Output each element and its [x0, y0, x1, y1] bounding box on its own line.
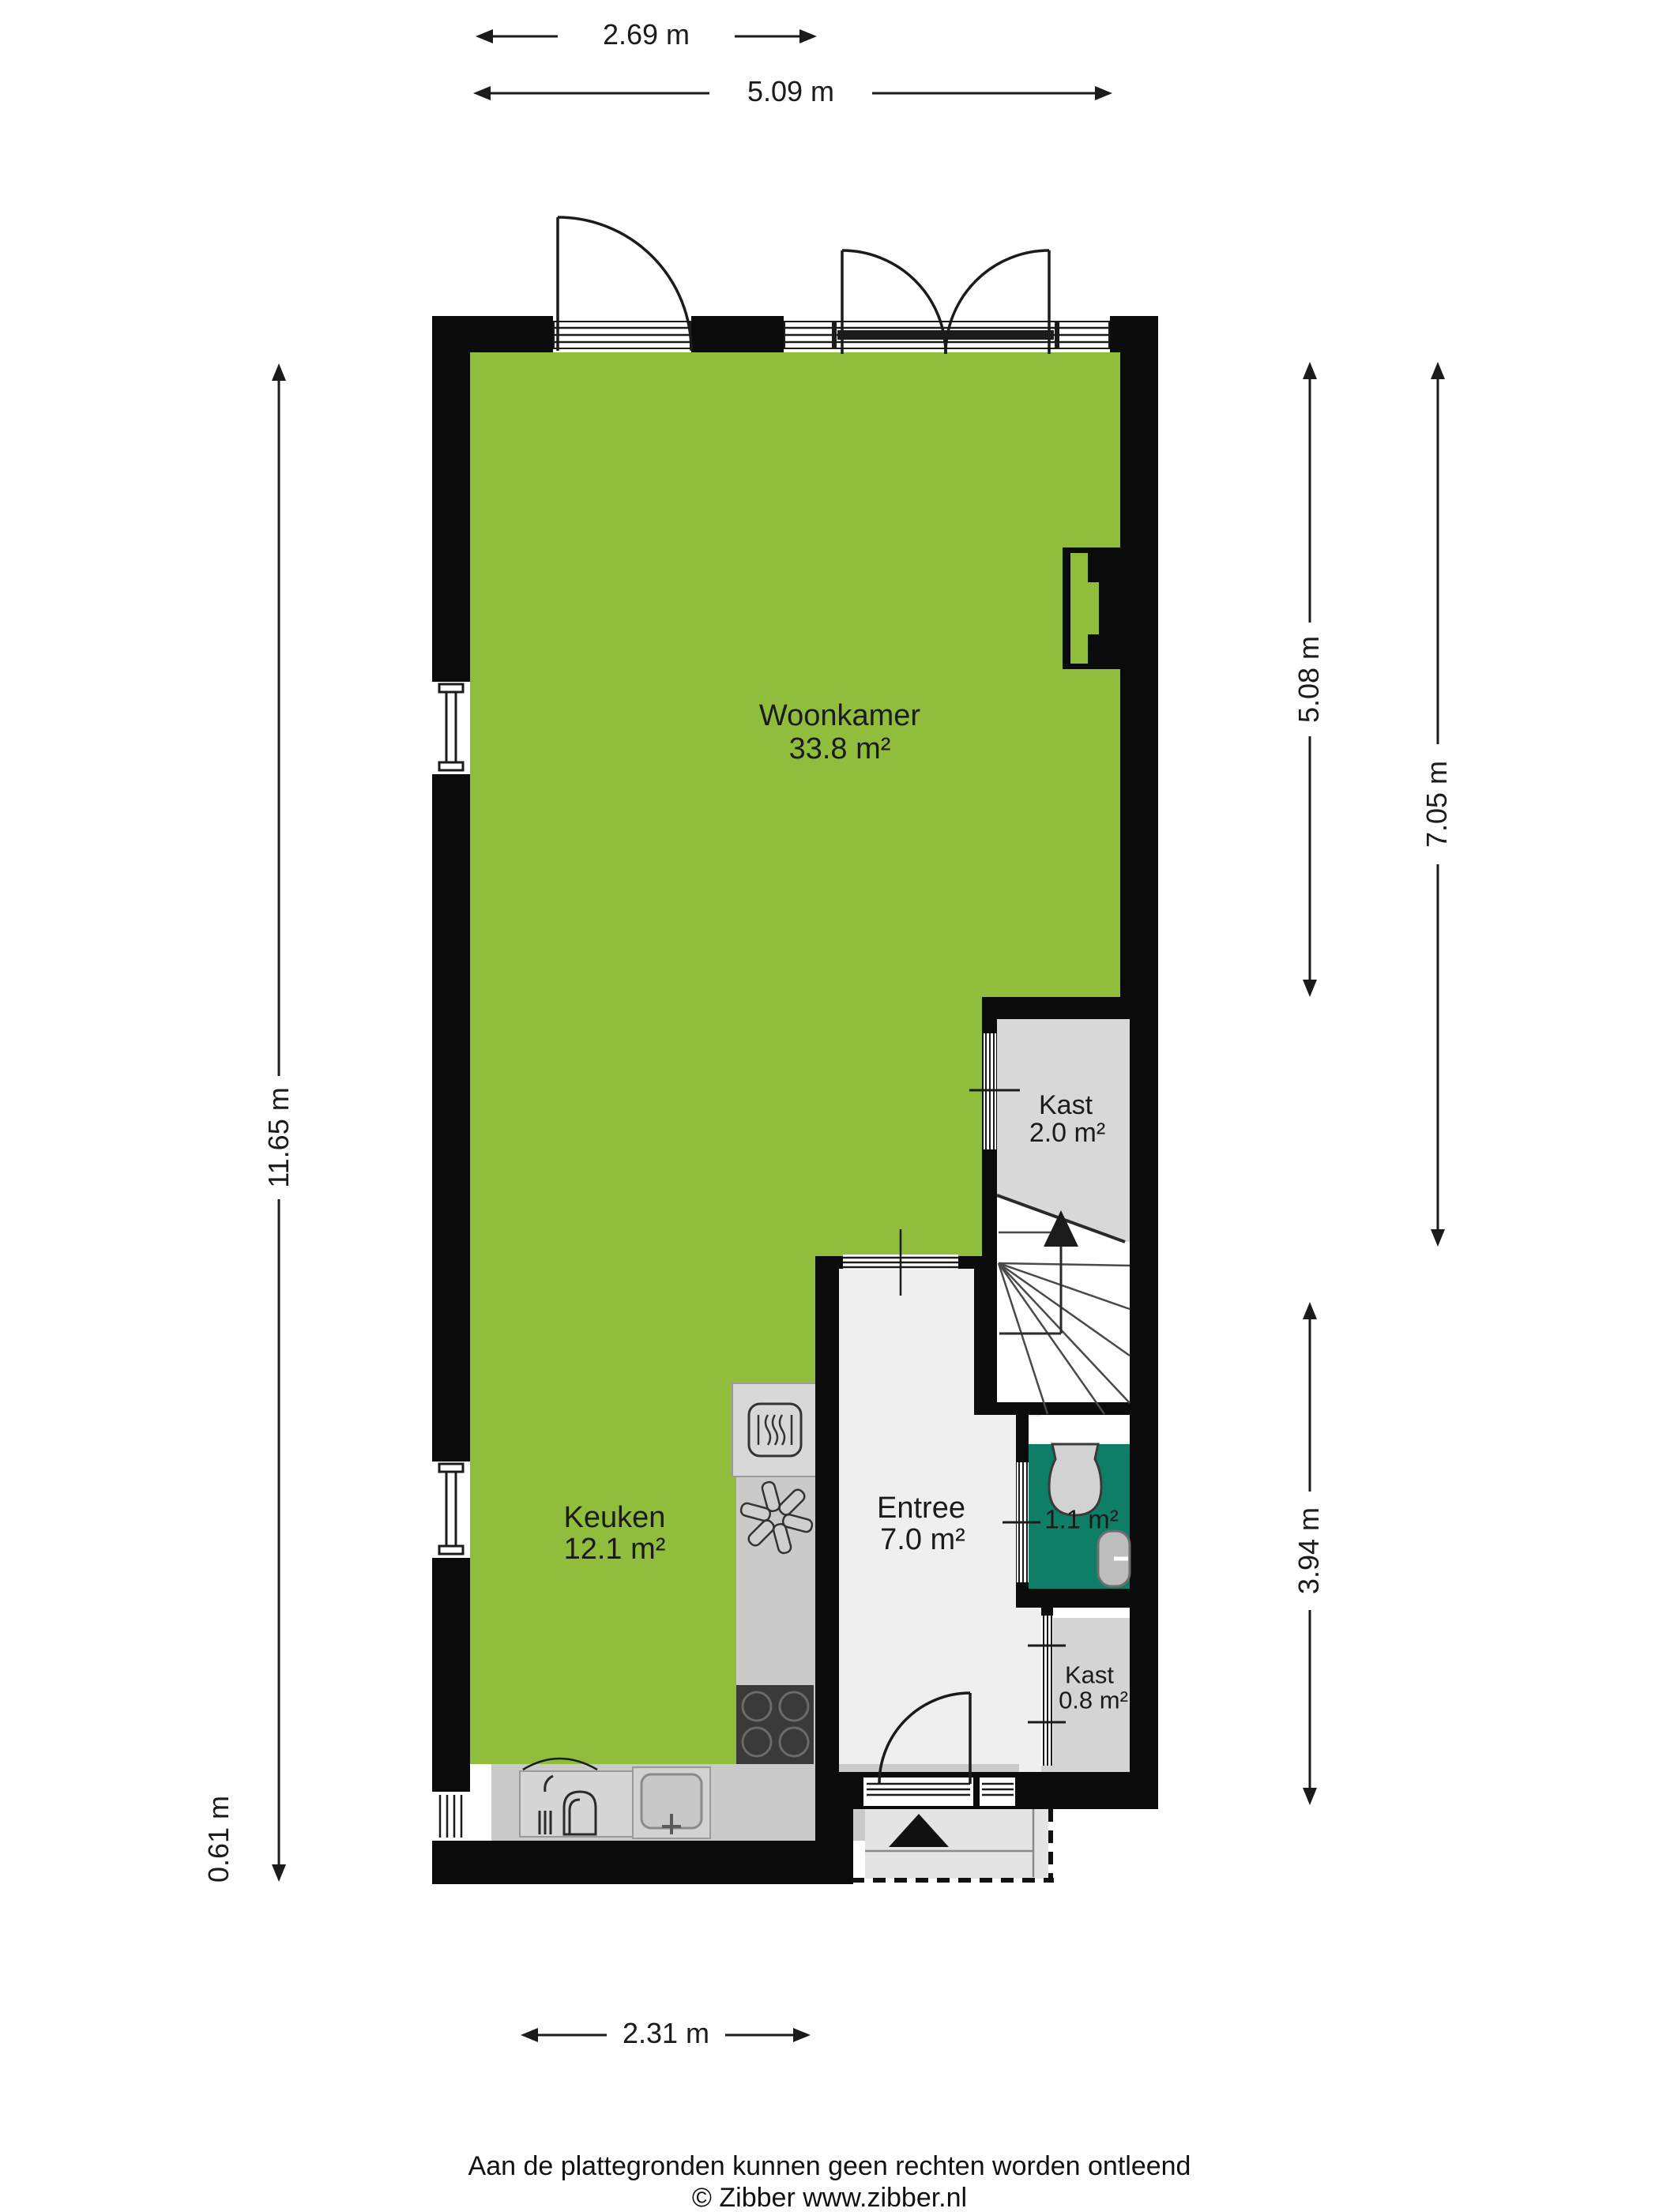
kast-boven-louvre-lines — [969, 1033, 1020, 1149]
kast-boven-label: Kast — [1039, 1092, 1093, 1119]
front-door-lines — [867, 1784, 1014, 1795]
dim-right-upper-label: 5.08 m — [1295, 636, 1323, 723]
woonkamer-area: 33.8 m² — [789, 734, 891, 764]
dim-right-lower-label: 3.94 m — [1295, 1507, 1323, 1594]
floorplan-canvas: Woonkamer 33.8 m² Keuken 12.1 m² Entree … — [0, 0, 1659, 2212]
kast-boven-area: 2.0 m² — [1029, 1119, 1105, 1146]
dim-left-small-label: 0.61 m — [205, 1796, 233, 1883]
woonkamer-label: Woonkamer — [759, 701, 920, 731]
sink-icon — [641, 1774, 702, 1834]
kast-onder-area: 0.8 m² — [1059, 1688, 1128, 1713]
keuken-area: 12.1 m² — [564, 1534, 666, 1564]
entree-label: Entree — [877, 1493, 965, 1523]
plan-linework — [0, 0, 1659, 2212]
opening-lines — [843, 1229, 958, 1296]
extractor-fan-icon — [739, 1480, 813, 1554]
oven-icon — [749, 1404, 801, 1456]
entrance-arrow — [889, 1814, 949, 1847]
dim-top-small-label: 2.69 m — [603, 21, 690, 49]
boiler-icon — [540, 1776, 596, 1834]
door-top-single — [558, 217, 691, 351]
window-glazing-1 — [439, 684, 463, 770]
keuken-label: Keuken — [564, 1503, 666, 1533]
counter-edge-arc — [523, 1759, 597, 1770]
cooktop-burners — [743, 1692, 808, 1756]
front-door-swing — [879, 1693, 970, 1784]
washbasin-icon — [1098, 1531, 1130, 1586]
window-glazing-2 — [439, 1464, 463, 1554]
door-frame-lines — [555, 321, 1108, 349]
entree-area: 7.0 m² — [880, 1525, 965, 1555]
porch-lines — [852, 1809, 1054, 1880]
kast-onder-label: Kast — [1065, 1663, 1114, 1687]
footer-credit: © Zibber www.zibber.nl — [0, 2183, 1659, 2212]
footer-disclaimer: Aan de plattegronden kunnen geen rechten… — [0, 2151, 1659, 2182]
toilet-area: 1.1 m² — [1044, 1507, 1119, 1533]
dim-bottom-label: 2.31 m — [623, 2019, 709, 2048]
toilet-louvre-lines — [1003, 1462, 1040, 1582]
window-glazing-3 — [440, 1795, 461, 1838]
dim-left-main-label: 11.65 m — [265, 1087, 293, 1187]
dim-right-full-label: 7.05 m — [1423, 761, 1451, 848]
dim-top-large-label: 5.09 m — [747, 77, 834, 106]
